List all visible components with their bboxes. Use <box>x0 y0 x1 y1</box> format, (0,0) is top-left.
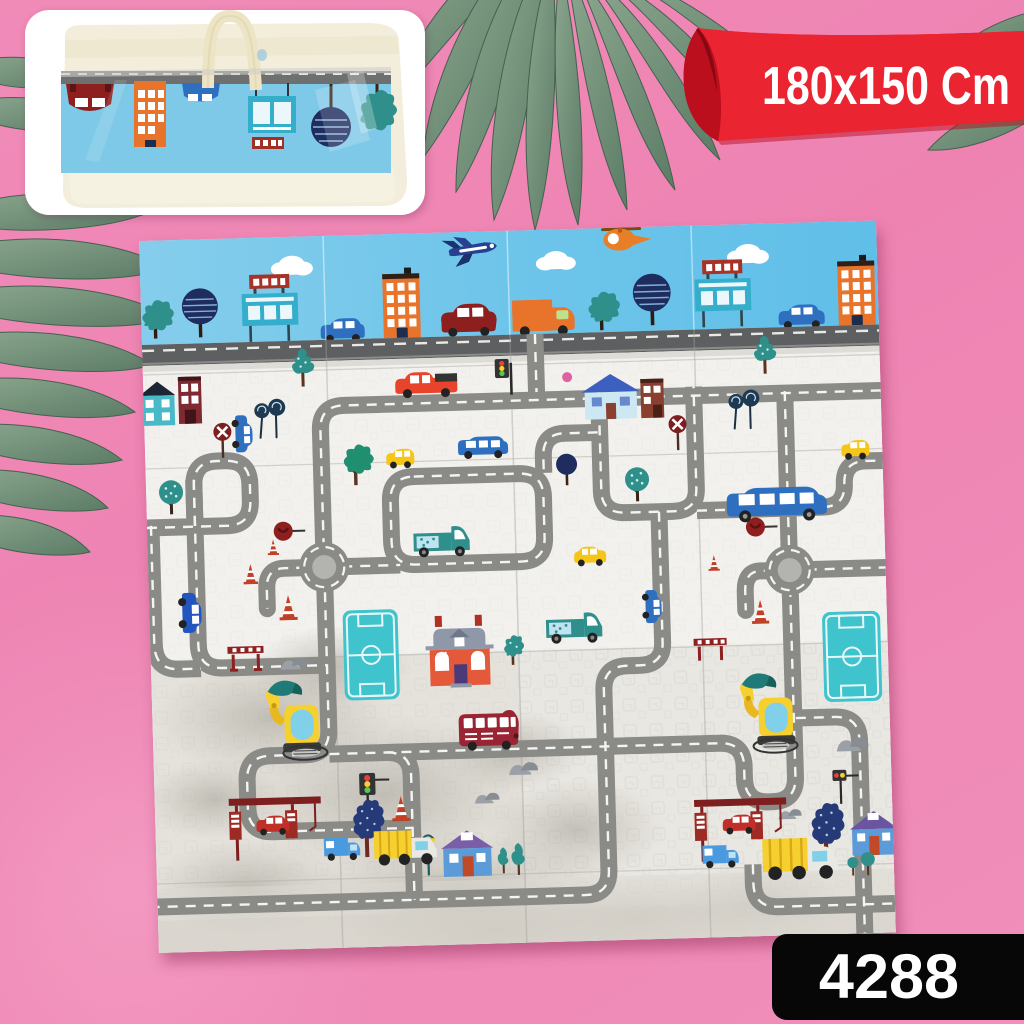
svg-text:180x150 Cm: 180x150 Cm <box>762 56 1010 116</box>
